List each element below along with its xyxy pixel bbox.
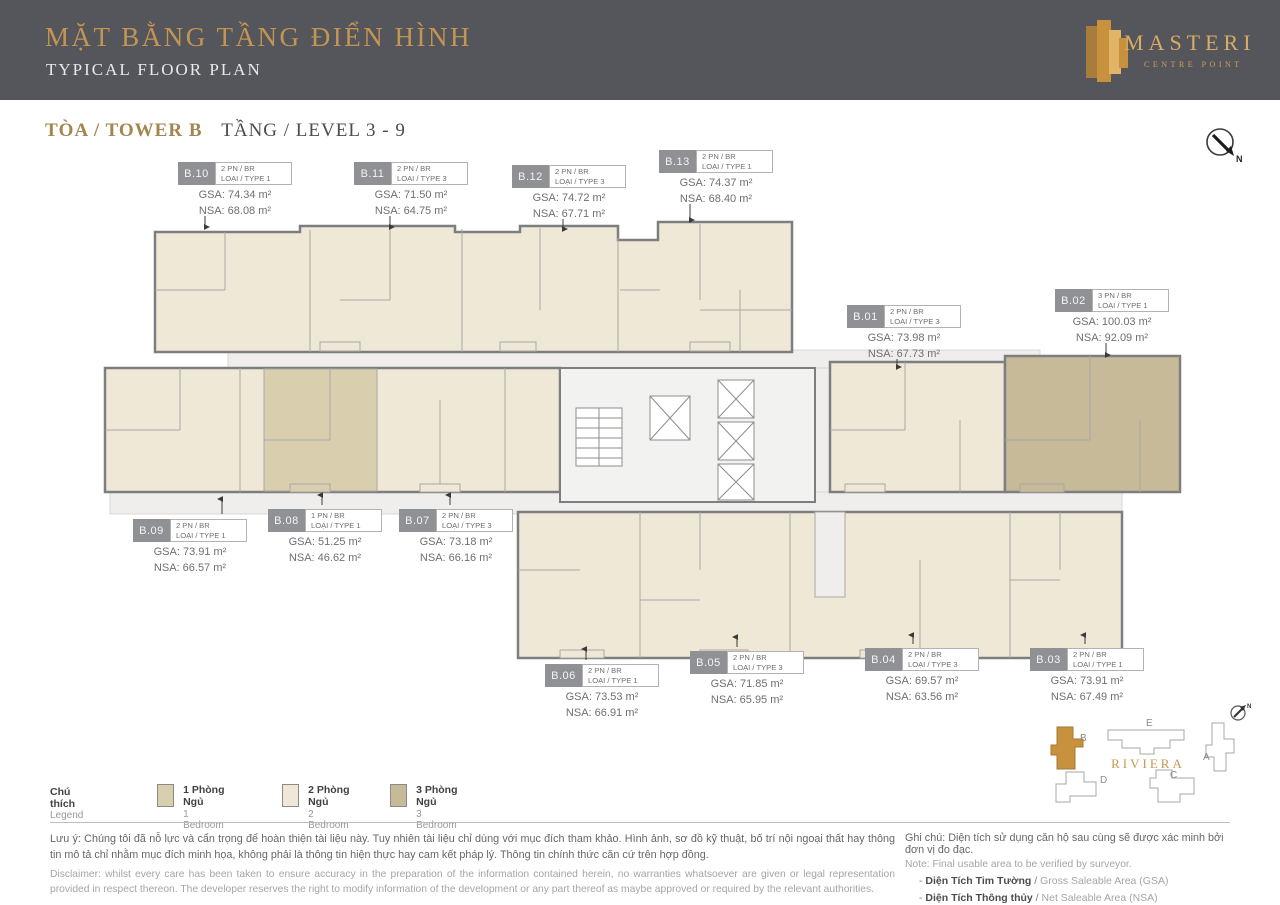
unit-callout-b-08: B.081 PN / BRLOẠI / TYPE 1GSA: 51.25 m²N…: [268, 509, 382, 564]
unit-type-box: 1 PN / BRLOẠI / TYPE 1: [305, 509, 382, 532]
page: MẶT BẰNG TẦNG ĐIỂN HÌNH TYPICAL FLOOR PL…: [0, 0, 1280, 905]
building-core: [560, 368, 815, 502]
unit-type: LOẠI / TYPE 3: [733, 663, 803, 673]
unit-type-box: 3 PN / BRLOẠI / TYPE 1: [1092, 289, 1169, 312]
note-item-vi: Diện Tích Tim Tường: [925, 875, 1031, 887]
wing-middle-left: [105, 368, 560, 492]
unit-nsa: NSA: 46.62 m²: [268, 552, 382, 564]
unit-type-box: 2 PN / BRLOẠI / TYPE 1: [215, 162, 292, 185]
site-tower-letter-b: B: [1080, 733, 1087, 744]
wing-bottom: [518, 512, 1122, 658]
floor-plan-drawing: N BEADC RIVIERA N: [0, 0, 1280, 905]
site-tower-e: [1108, 730, 1184, 754]
unit-type: LOẠI / TYPE 3: [890, 317, 960, 327]
unit-bedrooms: 2 PN / BR: [442, 511, 512, 521]
svg-text:N: N: [1247, 704, 1251, 710]
unit-bedrooms: 2 PN / BR: [908, 650, 978, 660]
legend-label-vi: 2 Phòng Ngủ: [308, 784, 355, 808]
unit-id-badge: B.08: [268, 509, 305, 532]
note-vi: Ghi chú: Diện tích sử dụng căn hộ sau cù…: [905, 832, 1240, 856]
note-en: Note: Final usable area to be verified b…: [905, 859, 1240, 870]
footer-divider: [50, 822, 1230, 823]
unit-type: LOẠI / TYPE 1: [221, 174, 291, 184]
unit-id-badge: B.02: [1055, 289, 1092, 312]
unit-type: LOẠI / TYPE 1: [702, 162, 772, 172]
unit-bedrooms: 2 PN / BR: [588, 666, 658, 676]
unit-nsa: NSA: 67.71 m²: [512, 208, 626, 220]
unit-id-badge: B.13: [659, 150, 696, 173]
unit-type-box: 2 PN / BRLOẠI / TYPE 1: [1067, 648, 1144, 671]
unit-bedrooms: 3 PN / BR: [1098, 291, 1168, 301]
site-tower-letters: BEADC: [1080, 718, 1210, 786]
unit-id-badge: B.12: [512, 165, 549, 188]
note-items: - Diện Tích Tim Tường / Gross Saleable A…: [905, 875, 1240, 904]
note-item-nsa: - Diện Tích Thông thủy / Net Saleable Ar…: [919, 892, 1240, 904]
wing-top: [155, 222, 792, 352]
stairs: [576, 408, 622, 466]
unit-gsa: GSA: 71.85 m²: [690, 678, 804, 690]
unit-type: LOẠI / TYPE 1: [1098, 301, 1168, 311]
site-tower-letter-c: C: [1170, 770, 1177, 781]
unit-type: LOẠI / TYPE 3: [397, 174, 467, 184]
legend-title-en: Legend: [50, 810, 83, 821]
unit-nsa: NSA: 63.56 m²: [865, 691, 979, 703]
unit-gsa: GSA: 71.50 m²: [354, 189, 468, 201]
unit-type-box: 2 PN / BRLOẠI / TYPE 1: [170, 519, 247, 542]
unit-type: LOẠI / TYPE 1: [311, 521, 381, 531]
unit-gsa: GSA: 69.57 m²: [865, 675, 979, 687]
legend-swatch: [282, 784, 299, 807]
site-tower-letter-d: D: [1100, 775, 1107, 786]
legend-swatch: [390, 784, 407, 807]
unit-bedrooms: 2 PN / BR: [221, 164, 291, 174]
unit-type-box: 2 PN / BRLOẠI / TYPE 3: [436, 509, 513, 532]
unit-gsa: GSA: 100.03 m²: [1055, 316, 1169, 328]
unit-type-box: 2 PN / BRLOẠI / TYPE 3: [727, 651, 804, 674]
riviera-label: RIVIERA: [1111, 756, 1185, 771]
unit-type: LOẠI / TYPE 1: [176, 531, 246, 541]
unit-callout-b-06: B.062 PN / BRLOẠI / TYPE 1GSA: 73.53 m²N…: [545, 664, 659, 719]
site-tower-b: [1051, 727, 1083, 769]
legend-item-3-bedroom: 3 Phòng Ngủ3 Bedroom: [390, 784, 463, 831]
unit-callout-b-01: B.012 PN / BRLOẠI / TYPE 3GSA: 73.98 m²N…: [847, 305, 961, 360]
compass-icon: N: [1207, 129, 1243, 164]
unit-callout-b-05: B.052 PN / BRLOẠI / TYPE 3GSA: 71.85 m²N…: [690, 651, 804, 706]
unit-callout-b-12: B.122 PN / BRLOẠI / TYPE 3GSA: 74.72 m²N…: [512, 165, 626, 220]
unit-id-badge: B.03: [1030, 648, 1067, 671]
disclaimer-en: Disclaimer: whilst every care has been t…: [50, 868, 895, 898]
unit-nsa: NSA: 64.75 m²: [354, 205, 468, 217]
unit-type: LOẠI / TYPE 1: [1073, 660, 1143, 670]
note-item-vi: Diện Tích Thông thủy: [925, 892, 1032, 904]
unit-nsa: NSA: 68.08 m²: [178, 205, 292, 217]
unit-callout-b-02: B.023 PN / BRLOẠI / TYPE 1GSA: 100.03 m²…: [1055, 289, 1169, 344]
unit-callout-b-11: B.112 PN / BRLOẠI / TYPE 3GSA: 71.50 m²N…: [354, 162, 468, 217]
unit-bedrooms: 2 PN / BR: [702, 152, 772, 162]
unit-gsa: GSA: 74.37 m²: [659, 177, 773, 189]
unit-nsa: NSA: 66.91 m²: [545, 707, 659, 719]
unit-bedrooms: 1 PN / BR: [311, 511, 381, 521]
unit-nsa: NSA: 67.73 m²: [847, 348, 961, 360]
svg-text:N: N: [1236, 154, 1243, 164]
note-item-gsa: - Diện Tích Tim Tường / Gross Saleable A…: [919, 875, 1240, 887]
legend-label-vi: 1 Phòng Ngủ: [183, 784, 230, 808]
unit-bedrooms: 2 PN / BR: [1073, 650, 1143, 660]
unit-gsa: GSA: 73.91 m²: [1030, 675, 1144, 687]
unit-gsa: GSA: 51.25 m²: [268, 536, 382, 548]
unit-nsa: NSA: 65.95 m²: [690, 694, 804, 706]
unit-type: LOẠI / TYPE 3: [908, 660, 978, 670]
unit-type: LOẠI / TYPE 3: [442, 521, 512, 531]
unit-gsa: GSA: 74.34 m²: [178, 189, 292, 201]
site-compass-icon: N: [1231, 704, 1251, 720]
unit-nsa: NSA: 67.49 m²: [1030, 691, 1144, 703]
site-tower-a: [1206, 723, 1234, 771]
unit-gsa: GSA: 73.98 m²: [847, 332, 961, 344]
unit-bedrooms: 2 PN / BR: [555, 167, 625, 177]
legend-item-1-bedroom: 1 Phòng Ngủ1 Bedroom: [157, 784, 230, 831]
unit-type: LOẠI / TYPE 1: [588, 676, 658, 686]
unit-id-badge: B.06: [545, 664, 582, 687]
legend-label-en: 2 Bedroom: [308, 809, 355, 831]
unit-bedrooms: 2 PN / BR: [733, 653, 803, 663]
unit-type-box: 2 PN / BRLOẠI / TYPE 3: [902, 648, 979, 671]
unit-id-badge: B.09: [133, 519, 170, 542]
disclaimer-vi: Lưu ý: Chúng tôi đã nỗ lực và cẩn trọng …: [50, 832, 895, 863]
unit-type-box: 2 PN / BRLOẠI / TYPE 3: [884, 305, 961, 328]
disclaimer-block: Lưu ý: Chúng tôi đã nỗ lực và cẩn trọng …: [50, 832, 895, 898]
legend-label-vi: 3 Phòng Ngủ: [416, 784, 463, 808]
unit-nsa: NSA: 66.57 m²: [133, 562, 247, 574]
wing-right: [830, 356, 1180, 492]
unit-gsa: GSA: 74.72 m²: [512, 192, 626, 204]
unit-id-badge: B.01: [847, 305, 884, 328]
note-item-en: Net Saleable Area (NSA): [1042, 892, 1158, 904]
unit-callout-b-13: B.132 PN / BRLOẠI / TYPE 1GSA: 74.37 m²N…: [659, 150, 773, 205]
unit-bedrooms: 2 PN / BR: [890, 307, 960, 317]
legend-swatch: [157, 784, 174, 807]
legend-title-vi: Chú thích: [50, 786, 83, 810]
legend-label-en: 1 Bedroom: [183, 809, 230, 831]
site-map: BEADC RIVIERA N: [1051, 704, 1251, 802]
unit-bedrooms: 2 PN / BR: [397, 164, 467, 174]
unit-nsa: NSA: 66.16 m²: [399, 552, 513, 564]
unit-type-box: 2 PN / BRLOẠI / TYPE 1: [696, 150, 773, 173]
note-block: Ghi chú: Diện tích sử dụng căn hộ sau cù…: [905, 832, 1240, 904]
legend-label-en: 3 Bedroom: [416, 809, 463, 831]
unit-type-box: 2 PN / BRLOẠI / TYPE 1: [582, 664, 659, 687]
unit-id-badge: B.07: [399, 509, 436, 532]
unit-id-badge: B.04: [865, 648, 902, 671]
unit-type-box: 2 PN / BRLOẠI / TYPE 3: [549, 165, 626, 188]
legend-item-2-bedroom: 2 Phòng Ngủ2 Bedroom: [282, 784, 355, 831]
unit-callout-b-09: B.092 PN / BRLOẠI / TYPE 1GSA: 73.91 m²N…: [133, 519, 247, 574]
unit-id-badge: B.10: [178, 162, 215, 185]
site-tower-letter-e: E: [1146, 718, 1153, 729]
unit-nsa: NSA: 68.40 m²: [659, 193, 773, 205]
unit-callout-b-04: B.042 PN / BRLOẠI / TYPE 3GSA: 69.57 m²N…: [865, 648, 979, 703]
unit-id-badge: B.11: [354, 162, 391, 185]
site-tower-d: [1056, 772, 1096, 802]
unit-gsa: GSA: 73.53 m²: [545, 691, 659, 703]
unit-callout-b-10: B.102 PN / BRLOẠI / TYPE 1GSA: 74.34 m²N…: [178, 162, 292, 217]
unit-callout-b-07: B.072 PN / BRLOẠI / TYPE 3GSA: 73.18 m²N…: [399, 509, 513, 564]
unit-type: LOẠI / TYPE 3: [555, 177, 625, 187]
unit-gsa: GSA: 73.91 m²: [133, 546, 247, 558]
unit-type-box: 2 PN / BRLOẠI / TYPE 3: [391, 162, 468, 185]
unit-nsa: NSA: 92.09 m²: [1055, 332, 1169, 344]
unit-bedrooms: 2 PN / BR: [176, 521, 246, 531]
unit-id-badge: B.05: [690, 651, 727, 674]
unit-callout-b-03: B.032 PN / BRLOẠI / TYPE 1GSA: 73.91 m²N…: [1030, 648, 1144, 703]
note-item-en: Gross Saleable Area (GSA): [1040, 875, 1168, 887]
unit-gsa: GSA: 73.18 m²: [399, 536, 513, 548]
site-tower-letter-a: A: [1203, 752, 1210, 763]
